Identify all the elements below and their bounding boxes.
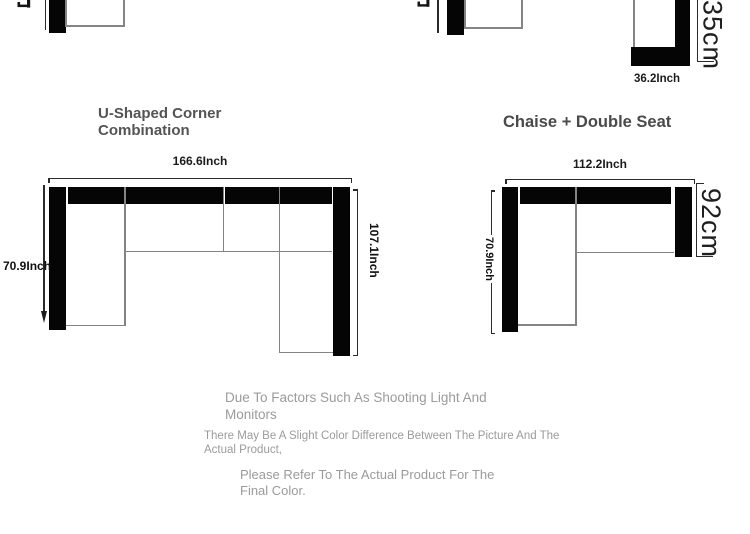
- dimension-line: [45, 0, 47, 30]
- disclaimer-line-2: There May Be A Slight Color Difference B…: [204, 430, 560, 457]
- seat-outline-edge: [633, 0, 635, 47]
- dimension-tick: [491, 333, 496, 335]
- width-dimension-line: [48, 178, 352, 180]
- dimension-tick: [505, 179, 507, 184]
- corner-depth-label: 35cm: [699, 0, 726, 70]
- chaise-left-depth-label: 70.9Inch: [483, 235, 494, 283]
- sofa-dimension-sheet: 35cm 36.2Inch U-Shaped Corner Combinatio…: [0, 0, 750, 534]
- sofa-armrest-bar: [447, 0, 464, 35]
- cutoff-text-fragment: [417, 0, 430, 7]
- backrest-segment: [280, 187, 332, 204]
- disclaimer-line-3: Please Refer To The Actual Product For T…: [240, 467, 520, 498]
- backrest-segment: [225, 187, 279, 204]
- chaise-width-label: 112.2Inch: [505, 157, 695, 171]
- seat-divider: [575, 187, 577, 327]
- chaise-front-edge: [518, 324, 577, 326]
- u-shape-title: U-Shaped Corner Combination: [98, 105, 258, 139]
- depth-dimension-line: [357, 189, 359, 356]
- backrest-segment: [577, 187, 671, 205]
- disclaimer-line-1: Due To Factors Such As Shooting Light An…: [225, 390, 509, 423]
- backrest-segment: [68, 187, 124, 204]
- dimension-tick: [351, 178, 353, 183]
- seat-front-edge: [577, 252, 674, 254]
- cutoff-text-fragment: [17, 0, 31, 8]
- seat-divider: [279, 187, 281, 354]
- dimension-tick: [48, 178, 50, 183]
- dimension-tick: [353, 189, 359, 191]
- u-shape-width-label: 166.6Inch: [48, 154, 352, 168]
- dimension-line: [437, 0, 439, 33]
- right-armrest-bar: [675, 187, 692, 257]
- u-shape-right-depth-label: 107.1Inch: [368, 223, 380, 278]
- seat-divider: [223, 187, 225, 253]
- u-shape-left-depth-label: 70.9Inch: [3, 259, 51, 273]
- seat-outline: [65, 0, 125, 27]
- corner-width-label: 36.2Inch: [634, 73, 680, 85]
- width-dimension-line: [505, 179, 695, 181]
- seat-outline: [464, 0, 523, 29]
- dimension-tick: [696, 183, 704, 184]
- seat-divider: [124, 187, 126, 327]
- chaise-front-edge: [66, 325, 126, 327]
- dimension-arrow: [41, 311, 47, 323]
- backrest-segment: [520, 187, 575, 205]
- corner-side-bar: [675, 0, 691, 66]
- right-armrest-bar: [333, 187, 350, 356]
- sofa-armrest-bar: [49, 0, 66, 33]
- seat-front-edge: [124, 251, 333, 253]
- dimension-tick: [353, 355, 359, 357]
- left-armrest-bar: [502, 187, 519, 332]
- chaise-title: Chaise + Double Seat: [503, 113, 671, 132]
- backrest-segment: [126, 187, 223, 204]
- depth-dimension-line: [43, 185, 45, 312]
- chaise-right-depth-label: 92cm: [697, 188, 724, 258]
- left-armrest-bar: [49, 187, 67, 330]
- chaise-front-edge: [279, 352, 333, 354]
- dimension-tick: [491, 190, 496, 192]
